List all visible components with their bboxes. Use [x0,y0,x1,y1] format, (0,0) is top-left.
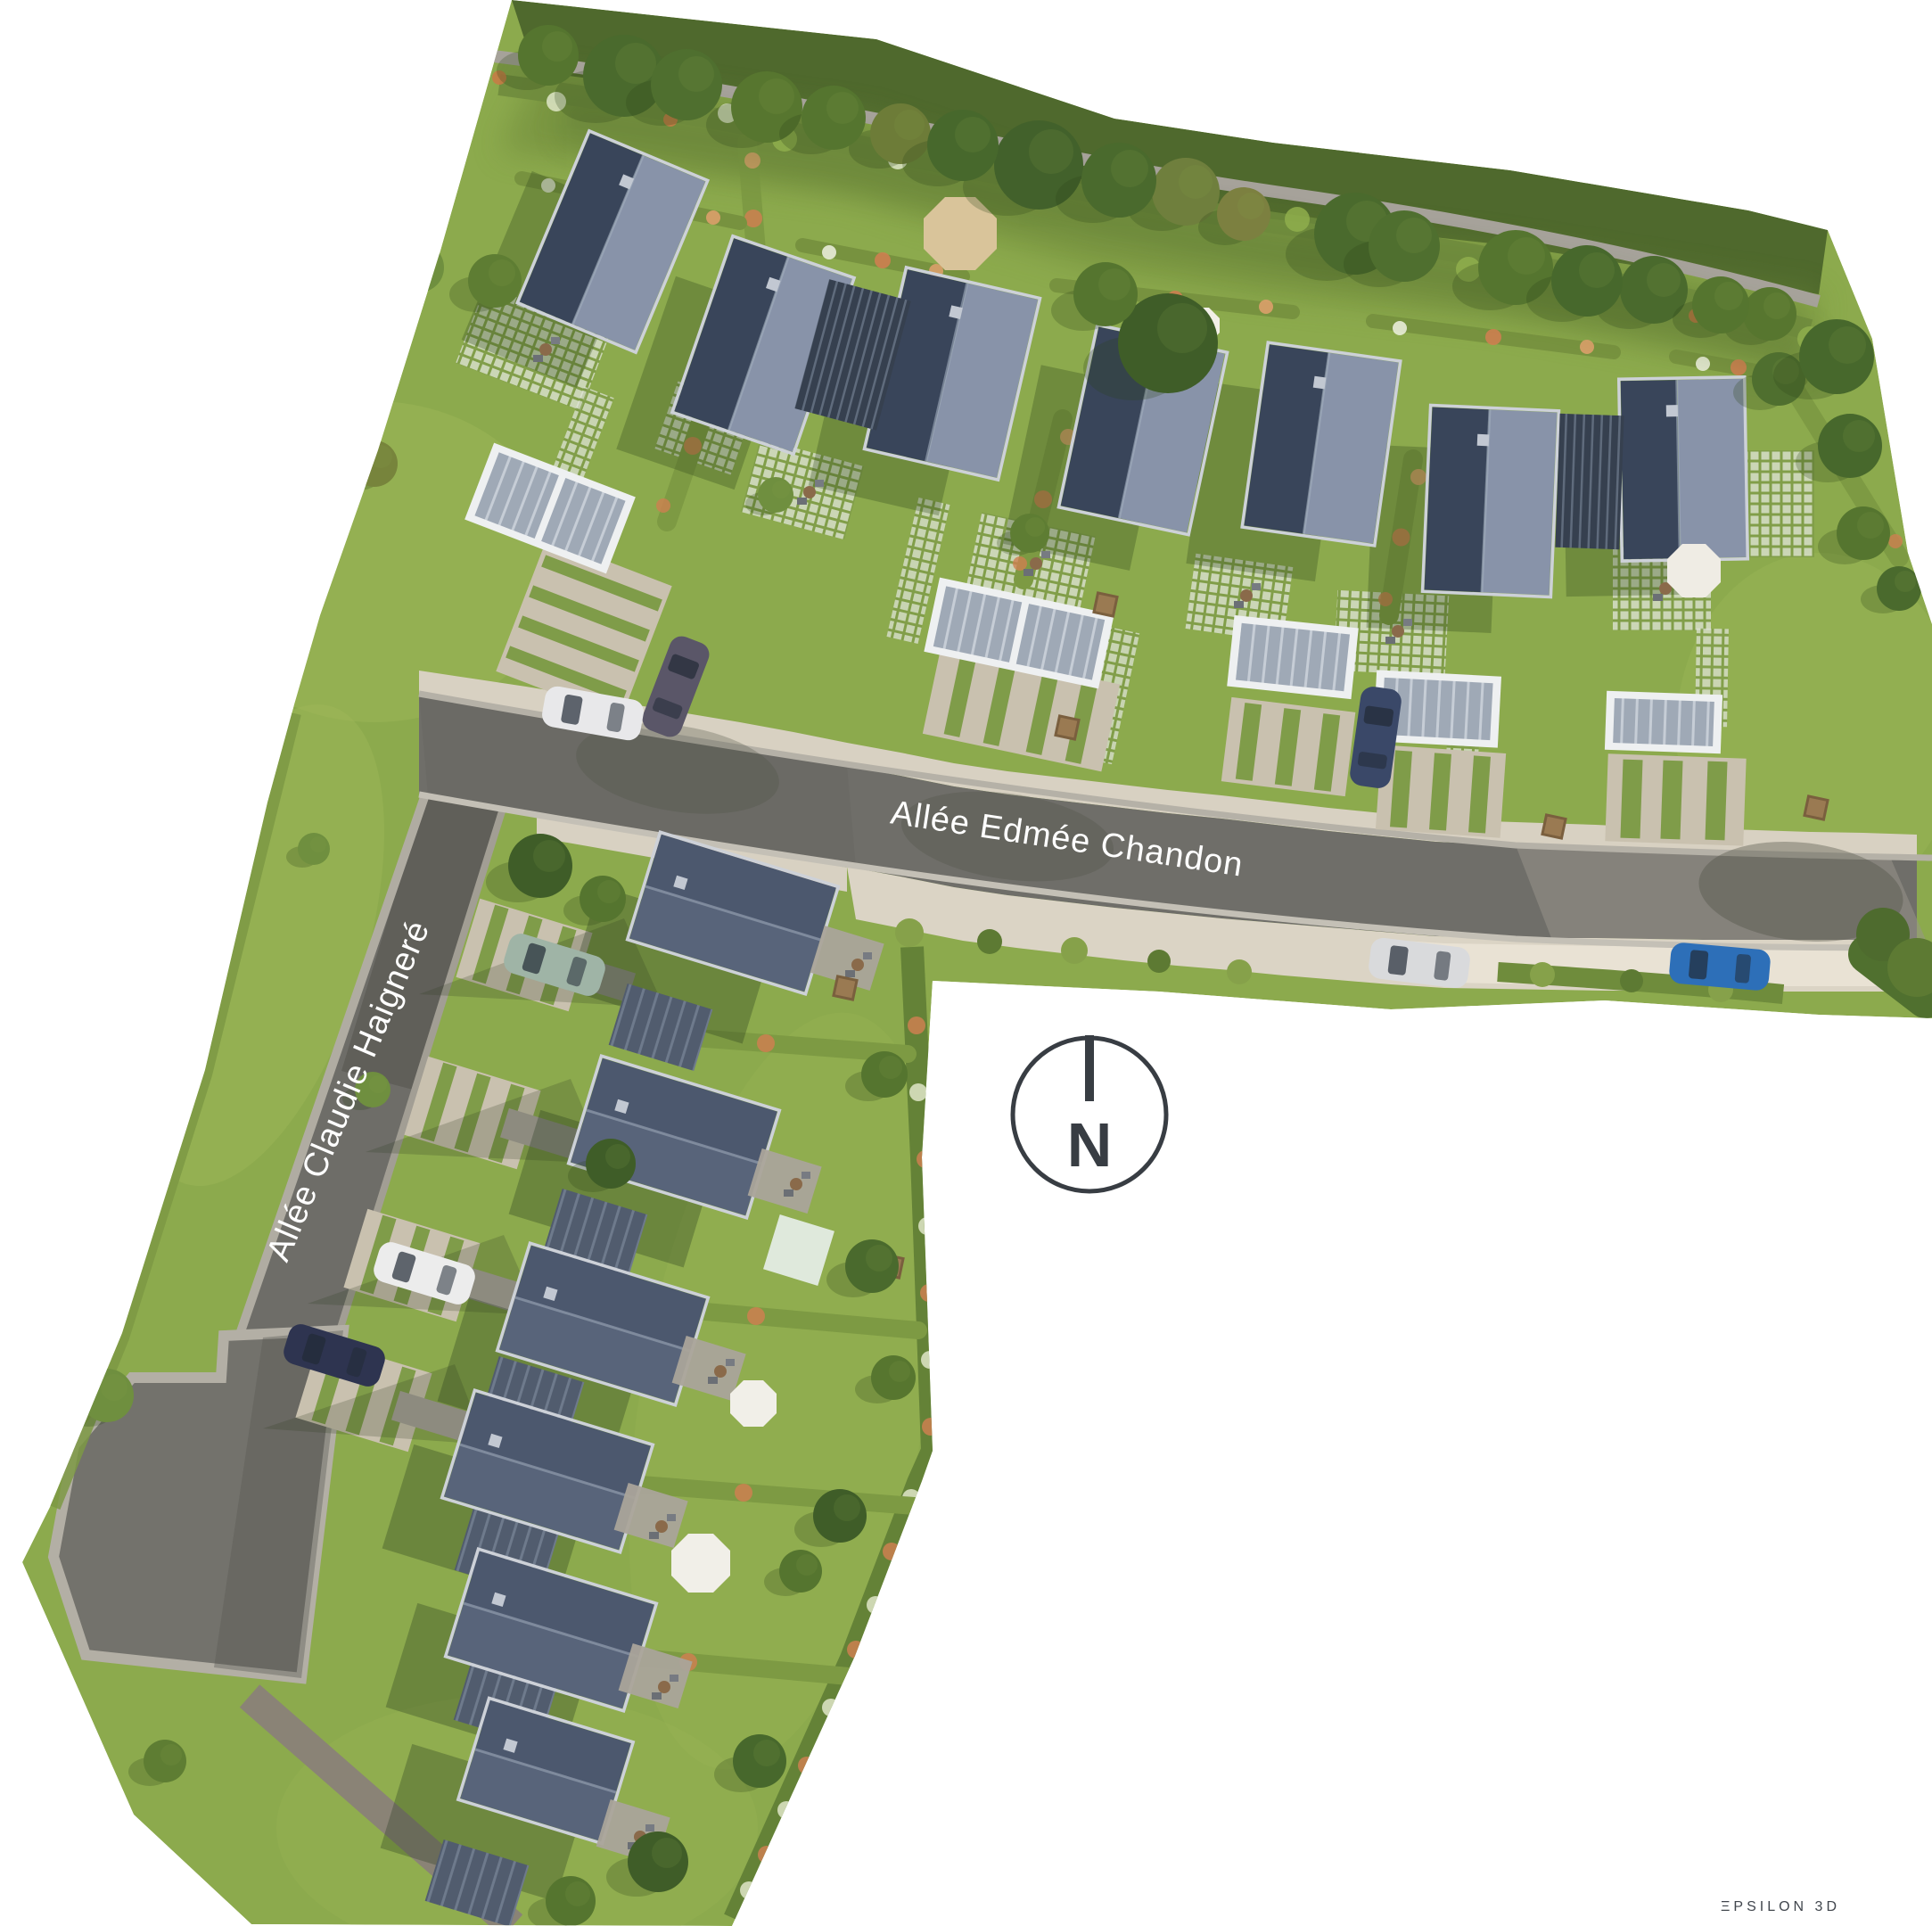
svg-text:N: N [1067,1110,1113,1180]
svg-text:ΞPSILON 3D: ΞPSILON 3D [1721,1899,1840,1914]
